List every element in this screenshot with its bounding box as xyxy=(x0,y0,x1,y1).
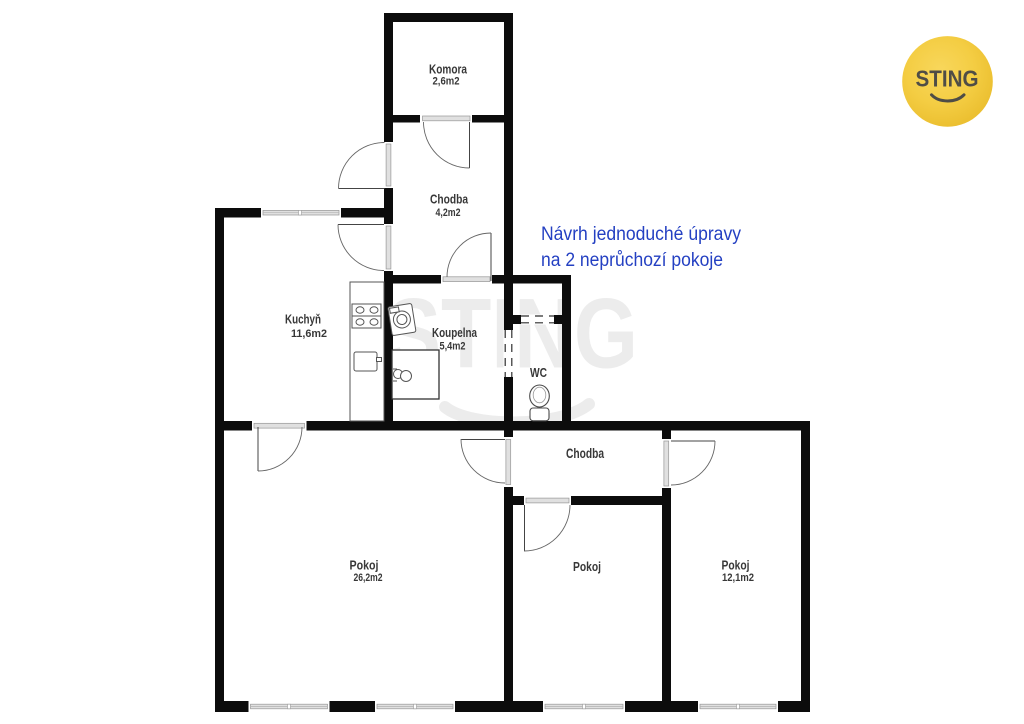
svg-text:11,6m2: 11,6m2 xyxy=(291,328,327,340)
svg-text:Koupelna: Koupelna xyxy=(432,326,478,340)
svg-text:na 2 neprůchozí pokoje: na 2 neprůchozí pokoje xyxy=(541,250,723,271)
svg-text:Chodba: Chodba xyxy=(430,193,469,207)
svg-text:STING: STING xyxy=(916,66,979,92)
svg-text:Pokoj: Pokoj xyxy=(722,559,750,573)
svg-text:26,2m2: 26,2m2 xyxy=(354,572,383,584)
svg-text:WC: WC xyxy=(530,366,547,380)
svg-text:Chodba: Chodba xyxy=(566,446,604,461)
svg-text:Pokoj: Pokoj xyxy=(573,560,601,574)
svg-text:Návrh jednoduché úpravy: Návrh jednoduché úpravy xyxy=(541,224,741,245)
svg-text:Pokoj: Pokoj xyxy=(350,559,379,573)
svg-text:4,2m2: 4,2m2 xyxy=(436,207,461,219)
svg-text:12,1m2: 12,1m2 xyxy=(722,572,754,584)
svg-text:2,6m2: 2,6m2 xyxy=(433,75,460,87)
svg-text:5,4m2: 5,4m2 xyxy=(440,341,466,353)
svg-text:Kuchyň: Kuchyň xyxy=(285,313,321,327)
